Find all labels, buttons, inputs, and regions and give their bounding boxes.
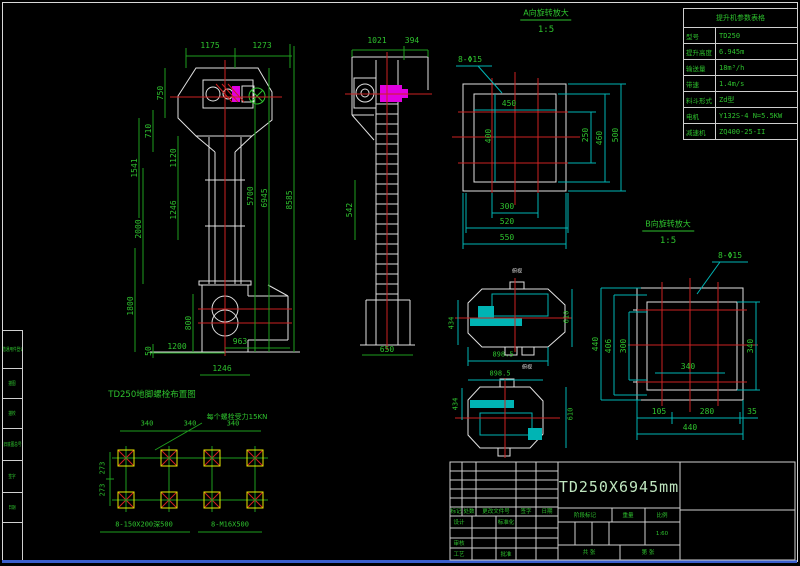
param-label: 带速 xyxy=(684,76,716,91)
dim-view-b-bottom-2: 35 xyxy=(747,408,757,416)
tb-process: 工艺 xyxy=(453,550,464,558)
param-value: 18m³/h xyxy=(716,60,797,75)
tb-sheet-index: 第 张 xyxy=(642,548,655,556)
table-row: 减速机 ZQ400-25-II xyxy=(684,124,797,139)
dim-side-top-1: 394 xyxy=(405,37,419,45)
dim-top2-left: 434 xyxy=(453,398,460,411)
tb-rev-sign: 签字 xyxy=(520,507,531,515)
cad-drawing-sheet: { "colors": { "background": "#000000", "… xyxy=(0,0,800,566)
dim-view-a-top: 450 xyxy=(502,100,516,108)
tb-approve: 批准 xyxy=(500,550,511,558)
strip-cell: 旧底图总号 xyxy=(3,428,22,460)
dim-view-a-right-0: 250 xyxy=(582,128,590,142)
tb-standardization: 标准化 xyxy=(498,518,515,526)
dim-main-left-8: 50 xyxy=(145,346,153,356)
view-a-scale: 1:5 xyxy=(538,25,554,35)
dim-side-top-0: 1021 xyxy=(367,37,386,45)
table-row: 料斗形式 Zd型 xyxy=(684,92,797,108)
dim-view-b-right: 340 xyxy=(747,339,755,353)
bolt-spec-label: 8-M16X500 xyxy=(211,522,249,529)
strip-label: 签字 xyxy=(9,473,16,480)
param-value: TD250 xyxy=(716,28,797,43)
dim-view-b-total: 440 xyxy=(683,424,697,432)
param-label: 减速机 xyxy=(684,124,716,139)
dim-view-a-holes: 8-Φ15 xyxy=(458,56,482,64)
view-b-scale: 1:5 xyxy=(660,236,676,246)
strip-cell: 日期 xyxy=(3,492,22,522)
param-label: 提升高度 xyxy=(684,44,716,59)
dim-bolt-top-1: 340 xyxy=(184,421,197,428)
dim-main-top-0: 1175 xyxy=(200,42,219,50)
tb-stage: 阶段标记 xyxy=(574,511,596,519)
dim-view-b-left-1: 406 xyxy=(605,339,613,353)
dim-main-left-3: 1120 xyxy=(170,148,178,167)
param-value: Y132S-4 N=5.5KW xyxy=(716,108,797,123)
dim-main-left-2: 1541 xyxy=(131,158,139,177)
dim-view-b-bottom-1: 280 xyxy=(700,408,714,416)
bolt-pocket-label: 8-150X200深500 xyxy=(115,522,173,529)
dim-main-left-6: 1800 xyxy=(127,296,135,315)
parameter-table: 提升机参数表格 型号 TD250 提升高度 6.945m 输送量 18m³/h … xyxy=(683,8,798,140)
tb-design: 设计 xyxy=(453,518,464,526)
tb-rev-date: 日期 xyxy=(541,507,552,515)
dim-bolt-top-0: 340 xyxy=(141,421,154,428)
strip-cell: 描校 xyxy=(3,398,22,428)
dim-main-right-0: 5700 xyxy=(247,186,255,205)
dim-main-bottom-2: 1246 xyxy=(212,365,231,373)
dim-bolt-left-1: 273 xyxy=(100,484,107,497)
dim-top2-top: 898.5 xyxy=(489,371,510,378)
dim-main-left-7: 800 xyxy=(185,316,193,330)
drawing-linework xyxy=(0,0,800,566)
table-row: 带速 1.4m/s xyxy=(684,76,797,92)
dim-bolt-left-0: 273 xyxy=(100,462,107,475)
dim-top2-right: 610 xyxy=(568,408,575,421)
view-b-label: B向旋转放大 xyxy=(642,219,694,232)
main-sprocket xyxy=(249,88,265,104)
strip-label: 描校 xyxy=(9,410,16,417)
param-label: 输送量 xyxy=(684,60,716,75)
strip-label: 旧底图总号 xyxy=(4,441,22,448)
param-label: 料斗形式 xyxy=(684,92,716,107)
dim-view-b-left-2: 300 xyxy=(620,339,628,353)
dim-view-b-holes: 8-Φ15 xyxy=(718,252,742,260)
dimension-lines-green xyxy=(100,44,428,532)
strip-cell: 借通用件登记 xyxy=(3,330,22,368)
param-value: 1.4m/s xyxy=(716,76,797,91)
tb-audit: 审核 xyxy=(453,539,464,547)
strip-cell: 签字 xyxy=(3,460,22,492)
top-view-2-label: 俯视 xyxy=(522,364,532,371)
centerlines xyxy=(118,52,758,508)
parameter-table-title: 提升机参数表格 xyxy=(684,9,797,28)
tb-rev-mark: 标记 xyxy=(450,507,461,515)
strip-label: 描图 xyxy=(9,380,16,387)
dim-view-b-bottom-0: 105 xyxy=(652,408,666,416)
bolt-layout-title: TD250地脚螺栓布置图 xyxy=(108,388,195,400)
dim-side-left: 542 xyxy=(346,203,354,217)
param-value: Zd型 xyxy=(716,92,797,107)
dim-main-left-5: 2000 xyxy=(135,219,143,238)
dim-main-left-0: 750 xyxy=(157,86,165,100)
dim-top1-right: 610 xyxy=(564,311,571,324)
dim-view-a-right-2: 500 xyxy=(612,128,620,142)
table-row: 输送量 18m³/h xyxy=(684,60,797,76)
tb-rev-doc: 更改文件号 xyxy=(482,507,510,515)
view-a-label: A向旋转放大 xyxy=(520,8,571,21)
drawing-title: TD250X6945mm xyxy=(559,478,679,496)
dim-bolt-top-2: 340 xyxy=(227,421,240,428)
dim-main-left-1: 710 xyxy=(145,124,153,138)
dim-main-bottom-0: 1200 xyxy=(167,343,186,351)
dim-side-bottom: 650 xyxy=(380,346,394,354)
dim-view-a-bottom-0: 300 xyxy=(500,203,514,211)
dim-main-bottom-1: 963 xyxy=(233,338,247,346)
strip-cell xyxy=(3,522,22,559)
tb-sheet-total: 共 张 xyxy=(583,548,596,556)
dim-top1-left: 434 xyxy=(449,317,456,330)
param-label: 型号 xyxy=(684,28,716,43)
dim-main-right-2: 8585 xyxy=(286,190,294,209)
strip-label: 借通用件登记 xyxy=(3,346,22,353)
dim-main-top-1: 1273 xyxy=(252,42,271,50)
dim-view-a-bottom-1: 520 xyxy=(500,218,514,226)
strip-cell: 描图 xyxy=(3,368,22,398)
table-row: 提升高度 6.945m xyxy=(684,44,797,60)
param-value: ZQ400-25-II xyxy=(716,124,797,139)
dim-main-right-1: 6945 xyxy=(261,188,269,207)
param-value: 6.945m xyxy=(716,44,797,59)
param-label: 电机 xyxy=(684,108,716,123)
dim-view-a-left: 400 xyxy=(485,129,493,143)
tb-scale: 比例 xyxy=(656,511,667,519)
head-top-view-2-drive xyxy=(470,400,542,440)
left-title-strip: 借通用件登记 描图 描校 旧底图总号 签字 日期 xyxy=(3,330,23,560)
anchor-bolt-pockets xyxy=(118,450,263,508)
dim-top1-bottom: 898.5 xyxy=(492,352,513,359)
dim-view-a-right-1: 460 xyxy=(596,131,604,145)
head-top-view-1-drive xyxy=(470,294,548,326)
tb-scale-value: 1:60 xyxy=(656,531,668,537)
dim-view-a-bottom-2: 550 xyxy=(500,234,514,242)
dim-main-left-4: 1246 xyxy=(170,200,178,219)
strip-label: 日期 xyxy=(9,504,16,511)
dim-view-b-left-0: 440 xyxy=(592,337,600,351)
table-row: 电机 Y132S-4 N=5.5KW xyxy=(684,108,797,124)
tb-rev-count: 处数 xyxy=(463,507,474,515)
tb-weight: 重量 xyxy=(622,511,633,519)
dim-view-b-inner-bottom: 340 xyxy=(681,363,695,371)
top-view-1-label: 俯视 xyxy=(512,268,522,275)
table-row: 型号 TD250 xyxy=(684,28,797,44)
